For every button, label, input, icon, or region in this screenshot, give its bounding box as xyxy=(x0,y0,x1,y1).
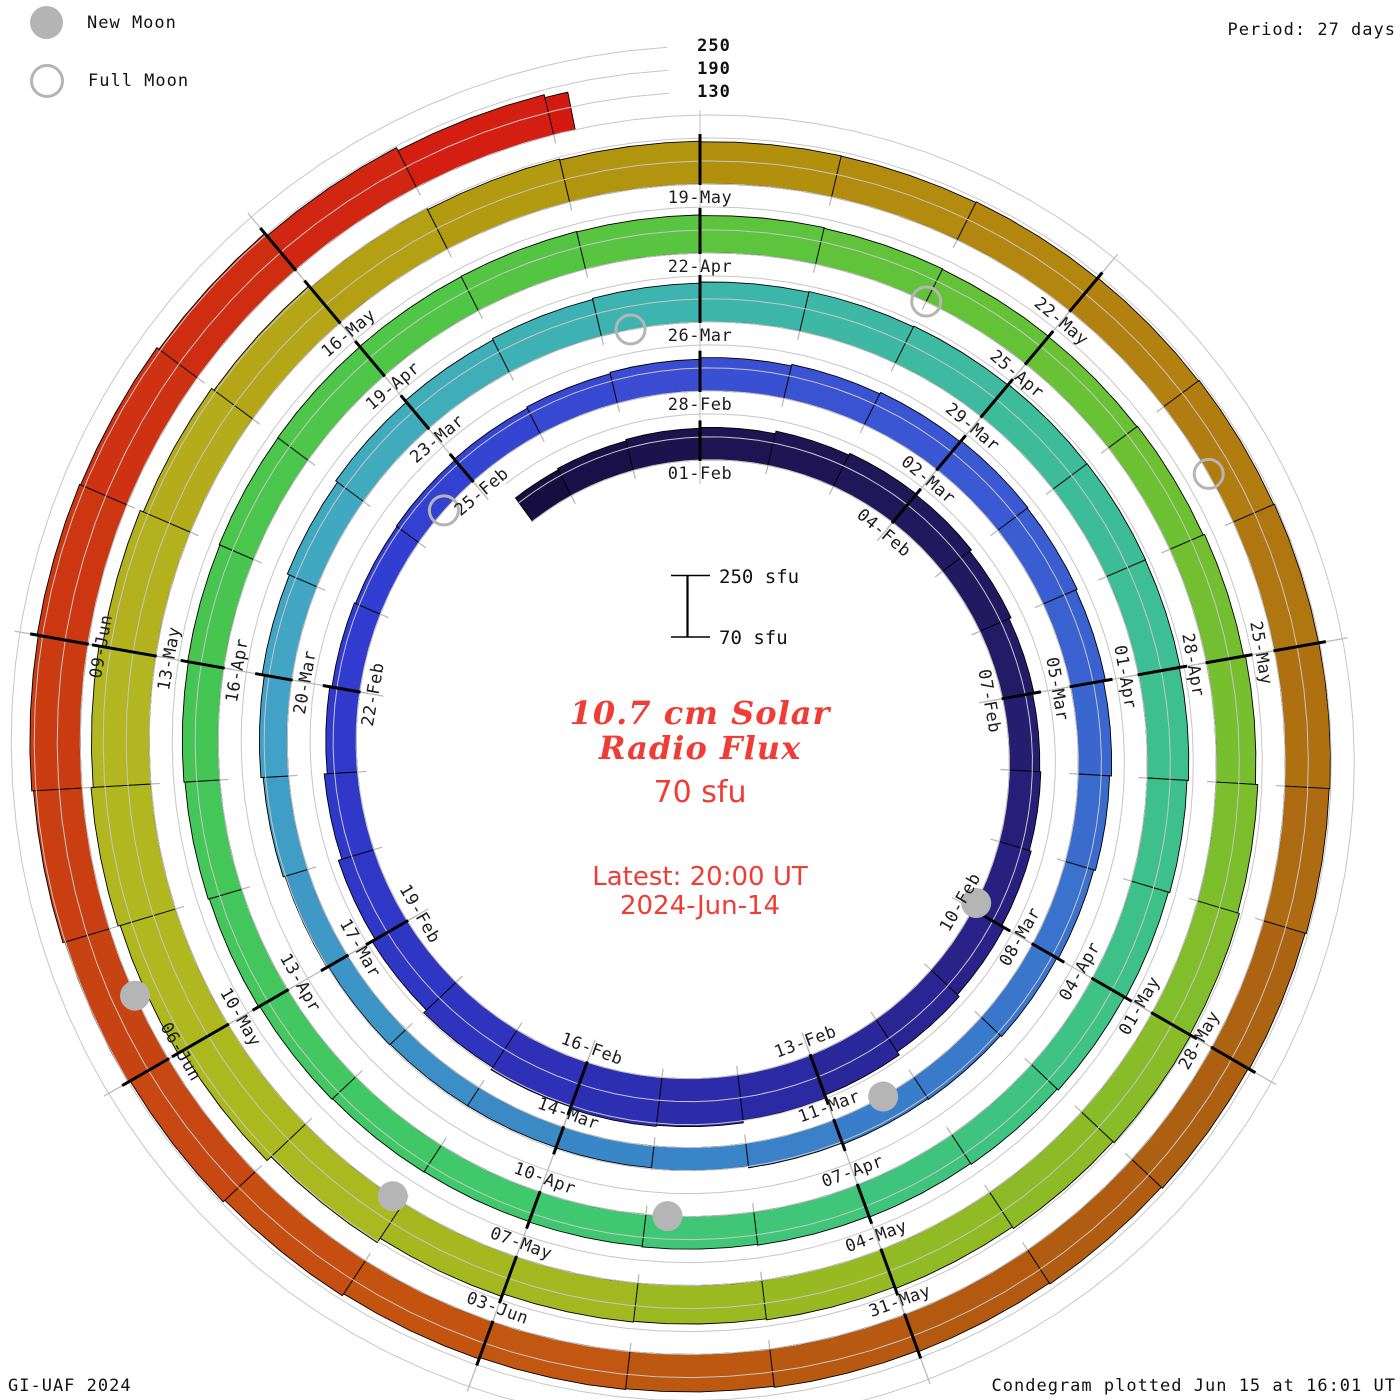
flux-scale-bar: 250 sfu70 sfu xyxy=(671,566,799,649)
day-tick xyxy=(127,505,135,509)
day-tick xyxy=(617,403,619,412)
flux-bar xyxy=(185,780,242,899)
day-tick xyxy=(1046,489,1053,494)
day-tick xyxy=(947,1127,952,1135)
day-tick xyxy=(830,197,832,206)
date-label: 22-Apr xyxy=(668,257,732,277)
day-tick xyxy=(1157,407,1164,412)
day-tick xyxy=(935,572,942,577)
day-tick xyxy=(1023,1243,1028,1251)
day-tick xyxy=(509,372,513,380)
day-tick xyxy=(82,787,91,788)
day-tick xyxy=(972,631,980,635)
plotted-timestamp: Condegram plotted Jun 15 at 16:01 UT xyxy=(992,1376,1396,1396)
day-tick xyxy=(761,1272,762,1281)
flux-bar xyxy=(263,776,308,877)
day-tick xyxy=(380,614,388,618)
day-tick xyxy=(479,1080,484,1088)
day-tick xyxy=(1255,918,1264,921)
day-tick xyxy=(242,887,251,890)
day-tick xyxy=(753,1203,754,1212)
flux-bar xyxy=(626,1349,775,1392)
day-tick xyxy=(478,311,482,319)
full-moon-label: Full Moon xyxy=(88,71,189,91)
flux-bar xyxy=(914,1017,1001,1099)
day-tick xyxy=(1162,549,1170,553)
date-label: 19-May xyxy=(668,188,732,208)
day-tick xyxy=(745,1135,746,1144)
day-tick xyxy=(253,419,260,424)
day-tick xyxy=(630,1343,631,1352)
flux-bar xyxy=(333,1077,442,1172)
latest-reading: Latest: 20:00 UT 2024-Jun-14 xyxy=(570,863,831,921)
day-tick xyxy=(654,1137,655,1146)
day-tick xyxy=(109,926,118,929)
day-tick xyxy=(571,496,575,504)
day-tick xyxy=(1125,1153,1132,1159)
day-tick xyxy=(1189,898,1198,901)
date-label: 28-Feb xyxy=(668,395,732,415)
flux-bar xyxy=(356,526,419,614)
day-tick xyxy=(305,1118,312,1124)
new-moon-marker xyxy=(120,981,150,1011)
day-tick xyxy=(517,1023,522,1031)
flux-bar xyxy=(529,1192,646,1246)
new-moon-icon xyxy=(30,6,63,39)
day-tick xyxy=(662,1069,663,1078)
day-tick xyxy=(633,470,635,479)
new-moon-label: New Moon xyxy=(87,13,177,33)
day-tick xyxy=(1075,1106,1082,1112)
day-tick xyxy=(1276,786,1285,787)
flux-bar xyxy=(209,889,287,1007)
day-tick xyxy=(601,336,603,345)
day-tick xyxy=(456,976,463,982)
day-tick xyxy=(638,1274,639,1283)
flux-bar xyxy=(952,1065,1057,1165)
day-tick xyxy=(1098,577,1106,581)
day-tick xyxy=(1123,879,1132,882)
flux-bar xyxy=(784,364,880,424)
day-tick xyxy=(891,363,895,371)
day-tick xyxy=(1138,778,1147,779)
day-tick xyxy=(766,465,768,474)
day-tick xyxy=(308,867,317,870)
scale-bar-top-label: 250 sfu xyxy=(719,566,799,588)
credit-label: GI-UAF 2024 xyxy=(8,1376,132,1396)
latest-date-label: 2024-Jun-14 xyxy=(570,892,831,921)
day-tick xyxy=(860,425,864,433)
flux-bar xyxy=(1065,774,1109,870)
day-tick xyxy=(782,398,784,407)
new-moon-legend-item: New Moon xyxy=(30,6,177,39)
day-tick xyxy=(317,587,325,591)
day-tick xyxy=(909,1070,914,1078)
day-tick xyxy=(1225,522,1233,526)
day-tick xyxy=(1035,604,1043,608)
day-tick xyxy=(540,434,544,442)
flux-bar xyxy=(1198,782,1258,913)
flux-bar xyxy=(91,784,175,926)
day-tick xyxy=(922,302,926,310)
new-moon-marker xyxy=(653,1201,683,1231)
day-tick xyxy=(1101,448,1108,453)
day-tick xyxy=(357,771,366,772)
day-tick xyxy=(289,775,298,776)
day-tick xyxy=(441,1138,446,1146)
day-tick xyxy=(356,1071,363,1077)
condegram-page: 01-Feb04-Feb07-Feb10-Feb13-Feb16-Feb19-F… xyxy=(0,0,1400,1400)
day-tick xyxy=(991,530,998,535)
full-moon-legend-item: Full Moon xyxy=(30,64,189,98)
flux-bar xyxy=(816,228,943,301)
full-moon-icon xyxy=(30,64,64,98)
day-tick xyxy=(1057,859,1066,862)
flux-bar xyxy=(858,1135,971,1218)
flux-bar xyxy=(1132,778,1188,893)
flux-bar xyxy=(428,159,570,249)
day-tick xyxy=(554,135,556,144)
scale-bar-bottom-label: 70 sfu xyxy=(719,627,788,649)
chart-title: 10.7 cm Solar Radio Flux xyxy=(570,696,831,766)
flux-bar xyxy=(1152,901,1239,1035)
flux-bar xyxy=(1207,656,1256,785)
day-tick xyxy=(871,1012,876,1020)
day-tick xyxy=(419,543,426,548)
day-tick xyxy=(374,847,383,850)
day-tick xyxy=(447,249,451,257)
day-tick xyxy=(737,1066,738,1075)
day-tick xyxy=(586,269,588,278)
flux-bar xyxy=(746,1120,843,1168)
day-tick xyxy=(769,1340,770,1349)
day-tick xyxy=(308,460,315,465)
day-tick xyxy=(646,1206,647,1215)
radial-scale-130: 130 xyxy=(697,82,731,102)
day-tick xyxy=(406,1023,413,1029)
day-tick xyxy=(975,1011,982,1017)
day-tick xyxy=(416,187,420,195)
day-tick xyxy=(365,1253,370,1261)
day-tick xyxy=(197,378,204,383)
flux-bar xyxy=(492,299,601,372)
day-tick xyxy=(798,331,800,340)
flux-bar xyxy=(326,687,360,774)
flux-bar xyxy=(558,441,634,496)
day-tick xyxy=(1207,782,1216,783)
day-tick xyxy=(829,486,833,494)
day-tick xyxy=(1069,774,1078,775)
day-tick xyxy=(255,1165,262,1171)
new-moon-marker xyxy=(868,1081,898,1111)
day-tick xyxy=(985,1185,990,1193)
latest-time-label: Latest: 20:00 UT xyxy=(570,863,831,892)
date-label: 01-Feb xyxy=(668,464,732,484)
day-tick xyxy=(175,906,184,909)
period-label: Period: 27 days xyxy=(1227,20,1396,40)
day-tick xyxy=(1000,769,1009,770)
flux-bar xyxy=(770,1315,918,1388)
day-tick xyxy=(814,264,816,273)
flux-bar xyxy=(182,662,223,782)
flux-bar xyxy=(1264,786,1330,933)
day-tick xyxy=(190,532,198,536)
new-moon-marker xyxy=(378,1181,408,1211)
flux-bar xyxy=(30,635,88,791)
radial-scale-250: 250 xyxy=(697,36,731,56)
flux-bar xyxy=(768,431,849,486)
chart-title-line1: 10.7 cm Solar xyxy=(570,696,831,731)
flux-bar xyxy=(800,292,914,364)
date-label: 26-Mar xyxy=(668,326,732,346)
day-tick xyxy=(953,240,957,248)
day-tick xyxy=(363,501,370,506)
chart-title-line2: Radio Flux xyxy=(570,731,831,766)
flux-bar xyxy=(633,1281,766,1324)
baseline-flux-label: 70 sfu xyxy=(570,775,831,810)
day-tick xyxy=(1025,1058,1032,1064)
day-tick xyxy=(924,964,931,970)
day-tick xyxy=(254,559,262,563)
flux-bar xyxy=(480,1322,630,1390)
center-annotation: 10.7 cm Solar Radio Flux 70 sfu Latest: … xyxy=(570,696,831,921)
day-tick xyxy=(151,783,160,784)
day-tick xyxy=(570,202,572,211)
flux-bar xyxy=(219,438,308,560)
day-tick xyxy=(991,839,1000,842)
radial-scale-190: 190 xyxy=(697,59,731,79)
day-tick xyxy=(220,779,229,780)
day-tick xyxy=(295,270,301,277)
